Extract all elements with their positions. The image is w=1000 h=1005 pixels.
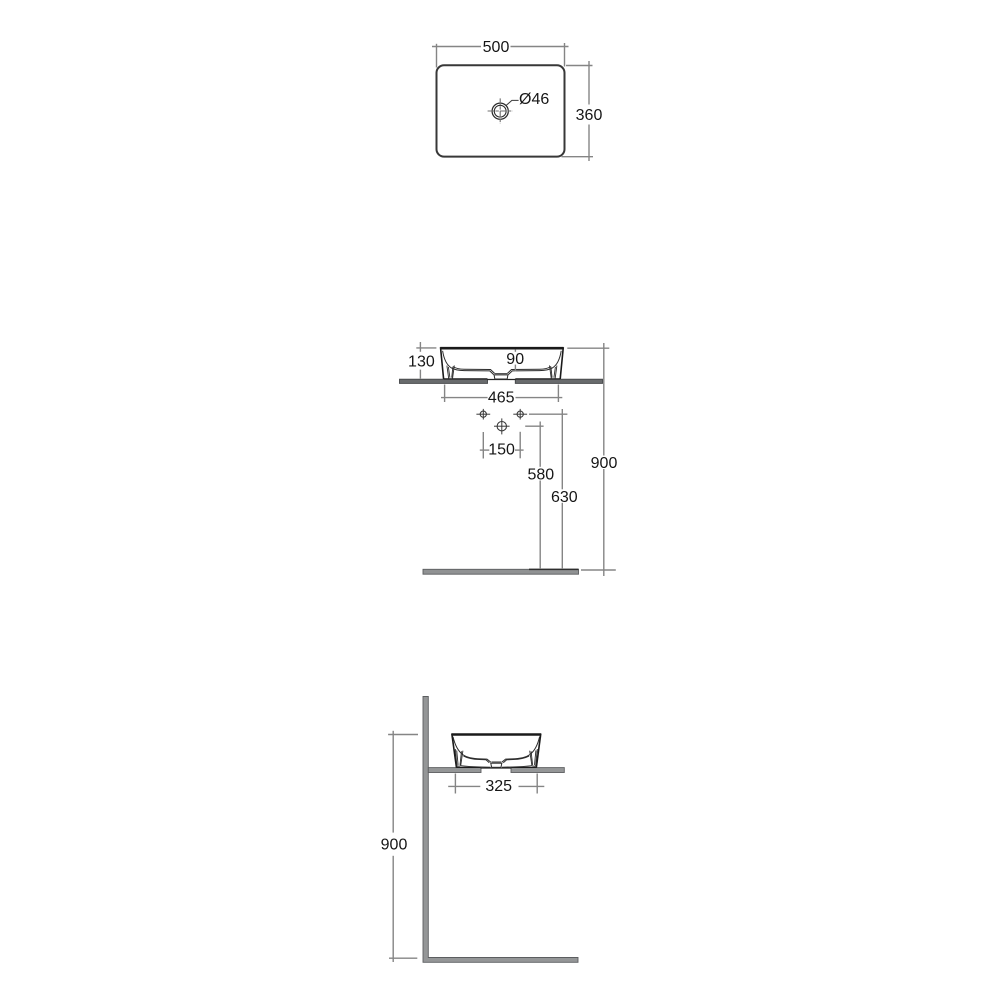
svg-text:130: 130 xyxy=(408,354,435,371)
svg-text:150: 150 xyxy=(488,441,515,458)
svg-text:630: 630 xyxy=(551,489,578,506)
svg-text:360: 360 xyxy=(576,107,603,124)
svg-text:500: 500 xyxy=(483,39,510,56)
svg-text:580: 580 xyxy=(527,466,554,483)
svg-text:90: 90 xyxy=(506,351,524,368)
svg-text:465: 465 xyxy=(488,389,515,406)
svg-text:Ø46: Ø46 xyxy=(519,91,549,108)
svg-text:900: 900 xyxy=(381,837,408,854)
svg-text:900: 900 xyxy=(591,455,618,472)
svg-text:325: 325 xyxy=(485,778,512,795)
